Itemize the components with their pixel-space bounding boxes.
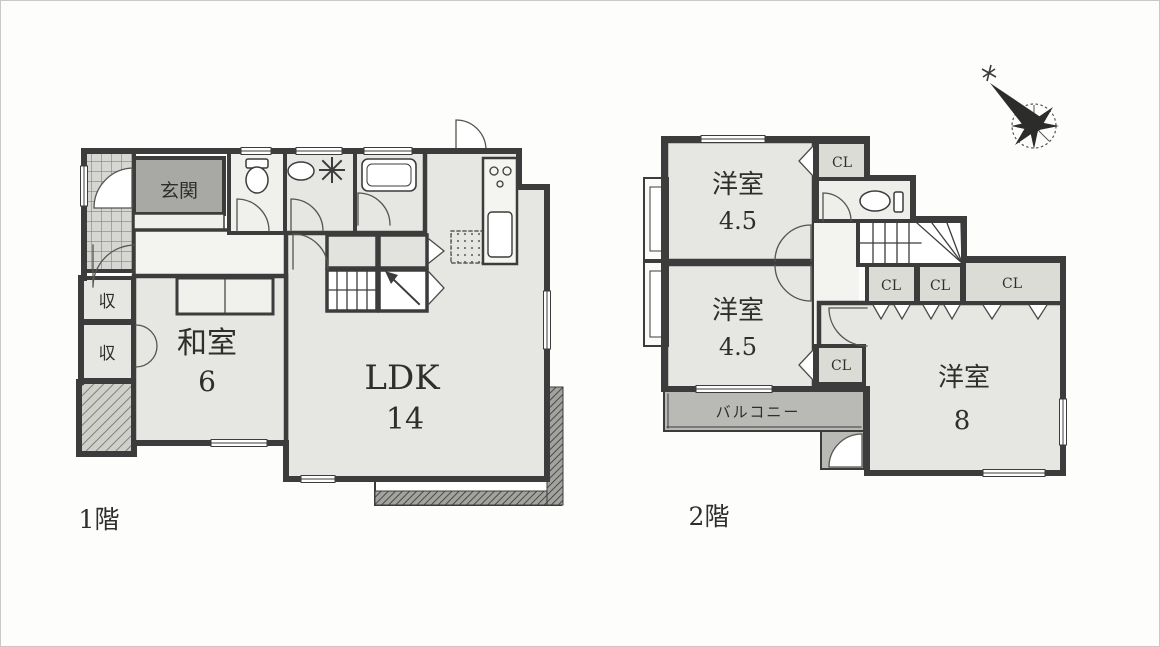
room-top-45 [666, 141, 814, 261]
sink-icon [288, 162, 314, 180]
closet-row3-label: CL [1002, 276, 1022, 292]
closet-row2-label: CL [930, 278, 950, 294]
floor1-plan: 玄関 和室 6 LDK 14 収 収 1階 [79, 120, 563, 534]
closet-top-label: CL [832, 155, 852, 171]
toilet-icon-2f [860, 191, 903, 212]
closet-mid-label: CL [831, 358, 851, 374]
floorplan-page: 玄関 和室 6 LDK 14 収 収 1階 [0, 0, 1160, 647]
toilet-icon [246, 159, 268, 193]
ldk-label: LDK [364, 358, 440, 398]
backdoor-arc [456, 120, 486, 150]
room-big-size-label: 8 [954, 406, 971, 436]
genkan-label: 玄関 [160, 180, 198, 202]
washitsu-label: 和室 [177, 326, 237, 361]
room-mid-45 [666, 264, 814, 389]
floor2-plan: 洋室 4.5 洋室 4.5 洋室 8 CL CL CL CL CL バルコニー … [644, 136, 1067, 532]
room-big-label: 洋室 [938, 363, 990, 393]
washitsu-size-label: 6 [198, 365, 216, 398]
storage-top-label: 収 [99, 292, 116, 312]
kitchen-sink-icon [488, 212, 512, 257]
floorplan-canvas: 玄関 和室 6 LDK 14 収 収 1階 [1, 1, 1160, 647]
room-mid-label: 洋室 [712, 296, 764, 326]
closet-row1-label: CL [881, 278, 901, 294]
room-top-label: 洋室 [712, 170, 764, 200]
compass-icon [982, 65, 1059, 149]
balcony-label: バルコニー [716, 403, 801, 421]
room-top-size-label: 4.5 [719, 207, 757, 235]
ldk-size-label: 14 [386, 402, 424, 437]
garden-hatch-area [79, 382, 133, 454]
floor2-caption: 2階 [689, 502, 730, 531]
genkan-step [134, 214, 224, 230]
washing-machine-icon [320, 158, 344, 182]
hallway [134, 230, 286, 276]
room-mid-size-label: 4.5 [719, 333, 757, 361]
floor1-stairs [327, 235, 427, 311]
floor1-caption: 1階 [79, 505, 120, 534]
kitchen-counter [483, 158, 517, 264]
north-mark-icon [982, 65, 996, 81]
storage-bottom-label: 収 [99, 344, 116, 364]
